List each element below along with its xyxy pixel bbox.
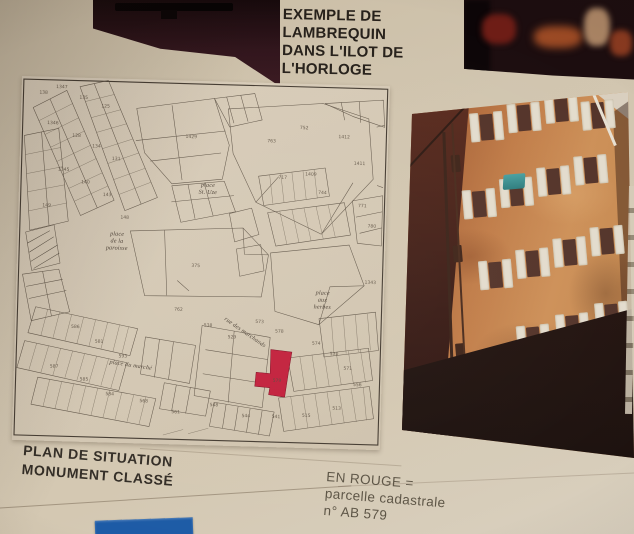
- map-border: [14, 79, 388, 445]
- map-sheet-edge: [140, 448, 401, 466]
- map-label: St. Uze: [199, 190, 218, 197]
- parcel-numbers: 1381347135125134612813413113451401431491…: [30, 84, 381, 423]
- street-and-place-labels: placeSt. Uzeplacede laparoisseplaceauxhe…: [101, 180, 334, 377]
- red-legend-caption: EN ROUGE =parcelle cadastralen° AB 579: [323, 468, 448, 528]
- map-label: 752: [300, 125, 309, 131]
- window-shutters: [562, 239, 577, 266]
- map-label: 149: [42, 202, 51, 208]
- photo-detail: [584, 8, 610, 46]
- map-label: 780: [367, 223, 376, 229]
- map-label: 568: [139, 398, 148, 404]
- map-label: 538: [204, 323, 213, 329]
- map-label: 762: [174, 307, 183, 313]
- window-shutters: [488, 261, 503, 288]
- photo-fragment-top-right: [464, 0, 634, 82]
- map-label: 135: [79, 95, 88, 101]
- map-label: paroisse: [105, 245, 128, 252]
- map-label: 1409: [305, 171, 317, 177]
- map-label: 586: [71, 324, 80, 330]
- map-label: place du marché: [108, 359, 152, 372]
- map-label: 143: [103, 192, 112, 198]
- map-label: herbes: [314, 304, 332, 310]
- map-label: 134: [92, 143, 101, 149]
- map-label: 529: [228, 334, 237, 340]
- window-shutters: [479, 114, 494, 141]
- map-label: 148: [120, 215, 129, 221]
- map-label: 1346: [47, 120, 59, 126]
- map-label: 513: [332, 406, 341, 412]
- map-label: 585: [80, 376, 89, 382]
- map-label: 541: [272, 414, 281, 420]
- window-shutters: [583, 157, 598, 184]
- building-photo: [400, 90, 634, 460]
- map-label: 584: [105, 391, 114, 397]
- map-label: 717: [278, 175, 287, 181]
- map-label: 375: [191, 263, 200, 269]
- plan-caption: PLAN DE SITUATIONMONUMENT CLASSÉ: [21, 441, 176, 491]
- window-shutters: [554, 95, 569, 122]
- map-label: de la: [110, 238, 123, 244]
- map-label: 125: [101, 103, 110, 109]
- lambrequin-caption: EXEMPLE DELAMBREQUINDANS L'ILOT DEL'HORL…: [281, 6, 416, 81]
- map-label: 1343: [364, 280, 376, 286]
- map-label: 587: [50, 363, 59, 369]
- highlighted-parcel-ab579: [254, 349, 292, 397]
- map-label: 548: [210, 402, 219, 408]
- map-label: 744: [318, 190, 327, 196]
- photo-detail: [610, 30, 632, 56]
- teal-awning: [503, 173, 526, 190]
- map-label: 140: [81, 179, 90, 185]
- photo-detail: [482, 14, 516, 44]
- map-label: 570: [330, 351, 339, 357]
- map-label: 1429: [185, 134, 197, 140]
- map-label: 573: [255, 319, 264, 325]
- dark-tab: [161, 10, 177, 19]
- window-shutters: [472, 191, 487, 218]
- window-shutters: [516, 104, 531, 131]
- blue-card-fragment: [95, 517, 194, 534]
- window-shutters: [600, 228, 615, 255]
- window-shutters: [546, 168, 561, 195]
- diagonal-pipe: [374, 86, 485, 204]
- map-label: 574: [312, 341, 321, 347]
- map-label: 763: [267, 138, 276, 144]
- hatched-parcel: [27, 230, 60, 269]
- map-label: 556: [353, 382, 362, 388]
- map-label: 581: [95, 339, 104, 345]
- poster-photo: EXEMPLE DELAMBREQUINDANS L'ILOT DEL'HORL…: [0, 0, 634, 534]
- map-label: aux: [318, 298, 328, 304]
- map-label: 515: [302, 413, 311, 419]
- map-label: 128: [72, 133, 81, 139]
- map-label: 1347: [56, 84, 68, 90]
- parcel-outlines: [15, 78, 386, 441]
- map-label: 771: [358, 203, 367, 209]
- map-label: 1412: [338, 134, 350, 140]
- cadastral-map: placeSt. Uzeplacede laparoisseplaceauxhe…: [12, 76, 390, 450]
- window-shutters: [525, 250, 540, 277]
- caption-line: L'HORLOGE: [281, 60, 415, 81]
- map-label: 561: [171, 409, 180, 415]
- map-label: place: [109, 231, 124, 237]
- map-label: 578: [275, 329, 284, 335]
- map-label: place: [315, 290, 330, 296]
- map-label: place: [200, 183, 215, 189]
- map-label: 1345: [58, 167, 70, 173]
- map-label: 131: [112, 156, 121, 162]
- map-label: 138: [39, 90, 48, 96]
- map-label: 579: [273, 378, 282, 384]
- photo-detail: [534, 26, 582, 48]
- map-label: 571: [343, 366, 352, 372]
- cadastral-map-drawing: placeSt. Uzeplacede laparoisseplaceauxhe…: [12, 76, 390, 450]
- map-label: 593: [118, 353, 127, 359]
- paper-crease: [0, 485, 351, 509]
- map-label: 544: [241, 413, 250, 419]
- map-label: 1411: [354, 161, 366, 167]
